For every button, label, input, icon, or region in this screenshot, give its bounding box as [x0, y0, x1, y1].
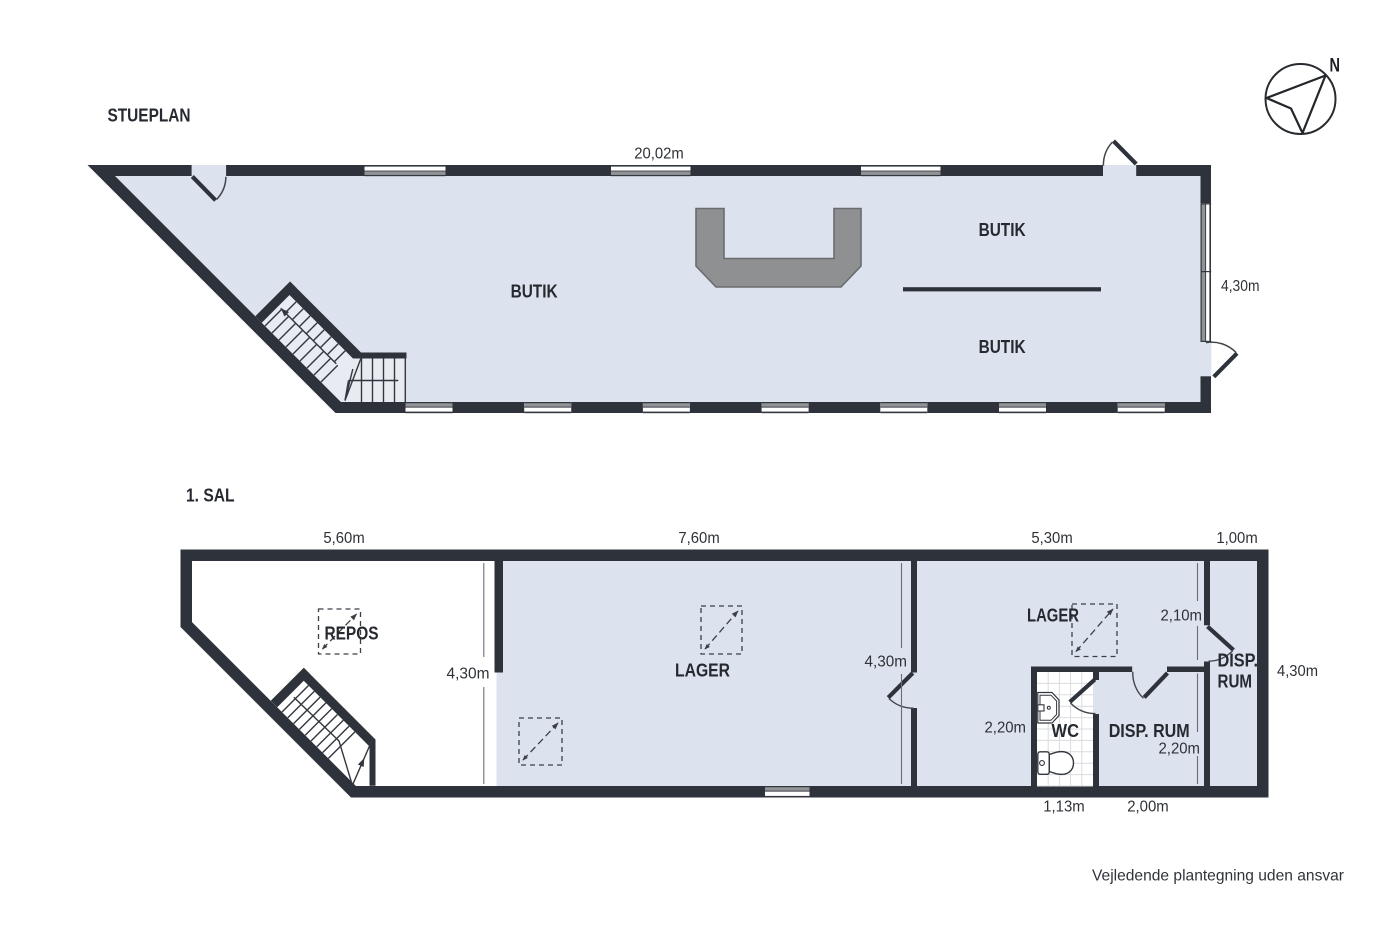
svg-text:STUEPLAN: STUEPLAN — [108, 106, 191, 126]
svg-text:7,60m: 7,60m — [678, 530, 719, 547]
svg-text:2,20m: 2,20m — [1159, 740, 1201, 757]
svg-text:1,13m: 1,13m — [1043, 799, 1085, 816]
svg-text:DISP.: DISP. — [1218, 650, 1259, 670]
svg-text:BUTIK: BUTIK — [979, 220, 1026, 240]
svg-text:WC: WC — [1052, 721, 1080, 741]
svg-text:BUTIK: BUTIK — [979, 337, 1026, 357]
svg-text:1. SAL: 1. SAL — [186, 486, 235, 506]
svg-text:2,10m: 2,10m — [1161, 608, 1203, 625]
svg-text:LAGER: LAGER — [1027, 606, 1079, 626]
svg-text:1,00m: 1,00m — [1216, 530, 1257, 547]
svg-text:RUM: RUM — [1218, 671, 1253, 691]
svg-text:20,02m: 20,02m — [634, 145, 684, 162]
svg-text:2,20m: 2,20m — [985, 720, 1027, 737]
svg-text:4,30m: 4,30m — [447, 666, 490, 683]
svg-text:REPOS: REPOS — [325, 623, 379, 643]
svg-text:4,30m: 4,30m — [1221, 278, 1260, 295]
svg-text:N: N — [1330, 55, 1341, 76]
svg-text:2,00m: 2,00m — [1127, 799, 1169, 816]
svg-text:DISP. RUM: DISP. RUM — [1109, 721, 1190, 741]
svg-text:Vejledende plantegning uden an: Vejledende plantegning uden ansvar — [1092, 868, 1345, 885]
svg-text:4,30m: 4,30m — [865, 654, 908, 671]
svg-text:BUTIK: BUTIK — [511, 281, 558, 301]
svg-text:5,30m: 5,30m — [1031, 530, 1072, 547]
svg-text:4,30m: 4,30m — [1277, 663, 1318, 680]
svg-text:LAGER: LAGER — [675, 661, 730, 681]
svg-text:5,60m: 5,60m — [323, 530, 364, 547]
